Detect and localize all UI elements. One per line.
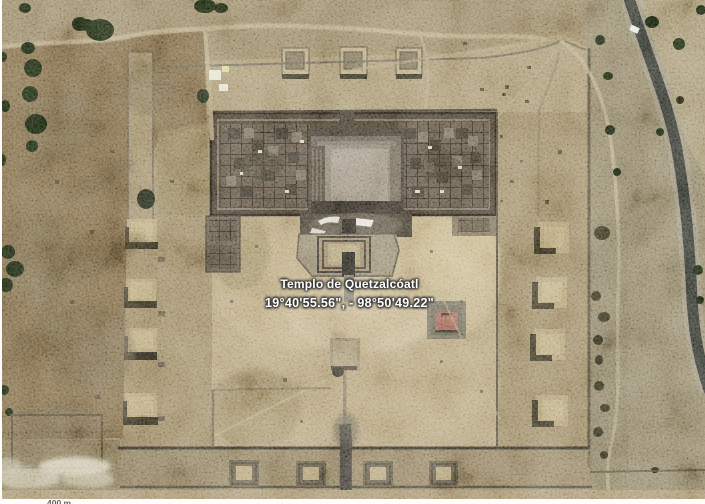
svg-text:400 m: 400 m — [47, 498, 72, 504]
